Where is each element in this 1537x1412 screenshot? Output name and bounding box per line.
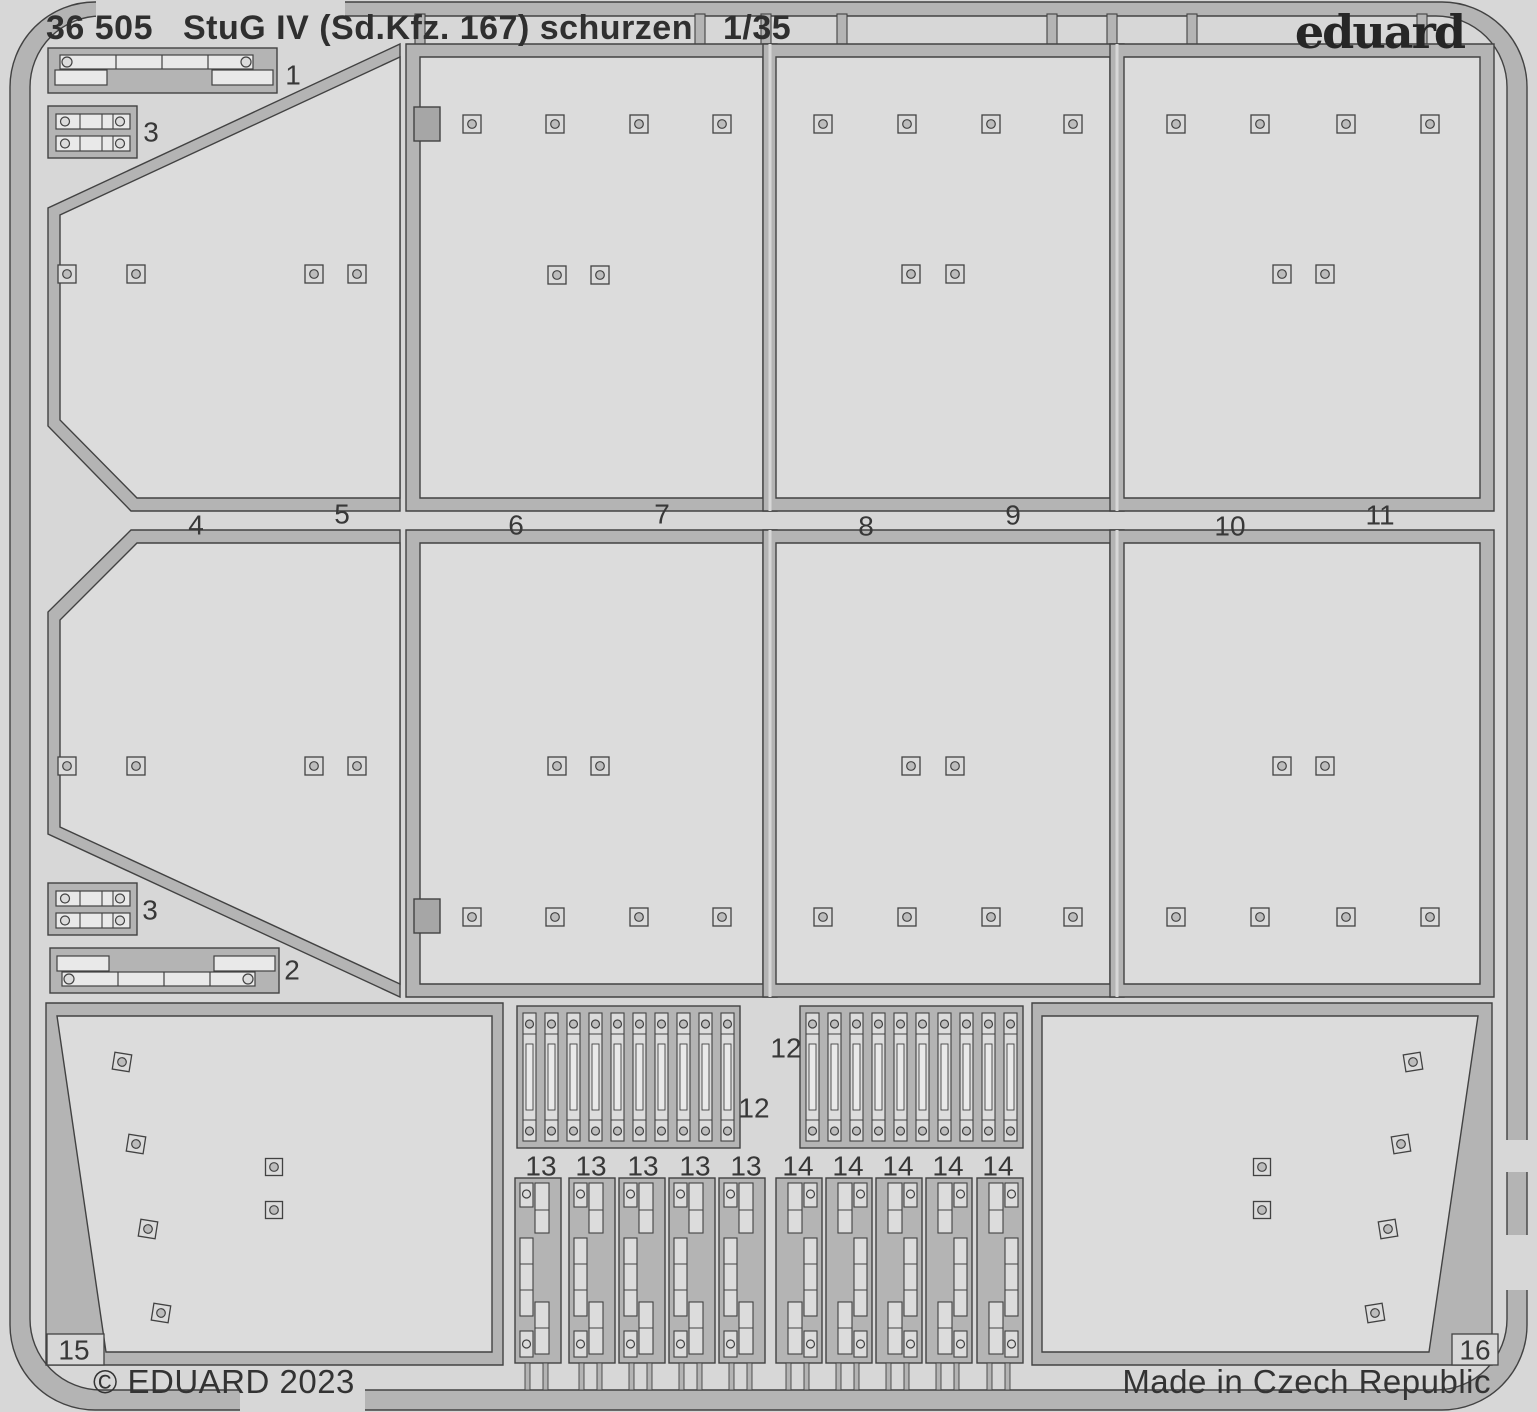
rivet-hole <box>64 974 74 984</box>
bracket-hole <box>727 1190 735 1198</box>
sprue-stem <box>804 1363 809 1390</box>
bolt-hole <box>1321 270 1330 279</box>
bolt-detail <box>713 115 731 133</box>
part-number-label: 11 <box>1365 500 1394 531</box>
bolt-detail <box>946 757 964 775</box>
strip-hole <box>897 1020 905 1028</box>
part-number-label: 9 <box>1005 500 1021 531</box>
sprue-stem <box>786 1363 791 1390</box>
strip-hole <box>570 1020 578 1028</box>
sprue-stem <box>1005 1363 1010 1390</box>
rivet-hole <box>61 139 70 148</box>
bracket-hole <box>627 1340 635 1348</box>
sprue-stem <box>597 1363 602 1390</box>
bolt-detail <box>112 1052 131 1071</box>
part-number-label: 6 <box>508 510 524 541</box>
hanger-strip-slot <box>875 1044 882 1110</box>
bolt-hole <box>907 762 916 771</box>
bolt-hole <box>1278 762 1287 771</box>
photoetch-sheet-scan: 1332456789101112121313131313141414141415… <box>0 0 1537 1412</box>
bolt-detail <box>1337 115 1355 133</box>
bracket-bar <box>804 1238 817 1316</box>
bolt-detail <box>1365 1303 1384 1322</box>
bolt-detail <box>982 115 1000 133</box>
bolt-hole <box>551 913 560 922</box>
strip-hole <box>570 1127 578 1135</box>
bolt-detail <box>1251 115 1269 133</box>
rivet-hole <box>61 117 70 126</box>
hanger-strip-slot <box>658 1044 665 1110</box>
bracket-slot <box>689 1183 703 1233</box>
bolt-hole <box>1069 913 1078 922</box>
sprue-stem <box>579 1363 584 1390</box>
hanger-strip-slot <box>941 1044 948 1110</box>
sprue-stem <box>629 1363 634 1390</box>
bracket-bar <box>674 1238 687 1316</box>
bolt-detail <box>463 115 481 133</box>
bolt-detail <box>1421 115 1439 133</box>
bolt-hole <box>156 1308 166 1318</box>
strip-hole <box>919 1020 927 1028</box>
hanger-strip-slot <box>680 1044 687 1110</box>
bolt-hole <box>903 913 912 922</box>
bolt-hole <box>987 120 996 129</box>
frame-gap <box>1503 1140 1533 1172</box>
hanger-strip-slot <box>724 1044 731 1110</box>
bolt-detail <box>1273 265 1291 283</box>
bolt-hole <box>1383 1224 1393 1234</box>
part-number-label: 13 <box>525 1151 556 1182</box>
bracket-slot <box>535 1183 549 1233</box>
bolt-hole <box>596 762 605 771</box>
strip-hole <box>831 1020 839 1028</box>
bolt-hole <box>1408 1057 1418 1067</box>
sprue-tab <box>1187 14 1197 46</box>
bolt-detail <box>126 1134 145 1153</box>
bolt-hole <box>819 913 828 922</box>
bolt-detail <box>591 757 609 775</box>
panel-notch <box>414 899 440 933</box>
bracket-hole <box>807 1190 815 1198</box>
sprue-stem <box>543 1363 548 1390</box>
hanger-strip-slot <box>614 1044 621 1110</box>
bolt-detail <box>898 115 916 133</box>
bracket-hole <box>523 1340 531 1348</box>
bracket-hole <box>957 1340 965 1348</box>
bolt-hole <box>819 120 828 129</box>
bolt-detail <box>814 908 832 926</box>
bolt-hole <box>635 120 644 129</box>
bolt-hole <box>1396 1139 1406 1149</box>
strip-hole <box>919 1127 927 1135</box>
rail-pad <box>214 956 275 971</box>
strip-hole <box>853 1020 861 1028</box>
strip-hole <box>548 1020 556 1028</box>
strip-hole <box>831 1127 839 1135</box>
part-number-label: 3 <box>143 117 159 148</box>
bolt-detail <box>982 908 1000 926</box>
sprue-stem <box>647 1363 652 1390</box>
strip-hole <box>658 1020 666 1028</box>
bolt-detail <box>814 115 832 133</box>
sprue-tab <box>1107 14 1117 46</box>
bracket-hole <box>577 1190 585 1198</box>
bolt-detail <box>546 115 564 133</box>
bolt-hole <box>1172 913 1181 922</box>
bracket-slot <box>788 1183 802 1233</box>
strip-hole <box>680 1127 688 1135</box>
sprue-stem <box>987 1363 992 1390</box>
bolt-detail <box>1064 908 1082 926</box>
strip-hole <box>636 1020 644 1028</box>
hanger-strip-slot <box>985 1044 992 1110</box>
bolt-detail <box>1421 908 1439 926</box>
bracket-hole <box>727 1340 735 1348</box>
sprue-stem <box>525 1363 530 1390</box>
bolt-hole <box>1256 120 1265 129</box>
sprue-stem <box>954 1363 959 1390</box>
bolt-hole <box>270 1206 279 1215</box>
bolt-detail <box>151 1303 170 1322</box>
bolt-hole <box>1426 913 1435 922</box>
strip-hole <box>724 1127 732 1135</box>
rivet-hole <box>62 57 72 67</box>
hanger-strip-slot <box>963 1044 970 1110</box>
bracket-hole <box>907 1190 915 1198</box>
strip-hole <box>963 1020 971 1028</box>
bracket-bar <box>624 1238 637 1316</box>
hanger-strip-slot <box>919 1044 926 1110</box>
bolt-hole <box>1370 1308 1380 1318</box>
bolt-detail <box>1254 1159 1271 1176</box>
bracket-hole <box>1008 1340 1016 1348</box>
frame-gap <box>1503 1235 1533 1290</box>
bracket-slot <box>888 1183 902 1233</box>
strip-hole <box>809 1020 817 1028</box>
bolt-detail <box>946 265 964 283</box>
bolt-hole <box>1258 1163 1267 1172</box>
sprue-stem <box>679 1363 684 1390</box>
bolt-detail <box>138 1219 157 1238</box>
bolt-hole <box>987 913 996 922</box>
rail-bar <box>62 972 255 986</box>
strip-hole <box>897 1127 905 1135</box>
strip-hole <box>985 1127 993 1135</box>
bolt-hole <box>1069 120 1078 129</box>
rivet-hole <box>116 139 125 148</box>
bolt-hole <box>907 270 916 279</box>
bracket-hole <box>1008 1190 1016 1198</box>
bracket-bar <box>520 1238 533 1316</box>
bolt-detail <box>127 265 145 283</box>
bracket-slot <box>589 1183 603 1233</box>
hanger-strip-slot <box>702 1044 709 1110</box>
hanger-strip-slot <box>853 1044 860 1110</box>
bracket-hole <box>523 1190 531 1198</box>
photoetch-fret-drawing: 1332456789101112121313131313141414141415… <box>0 0 1537 1412</box>
bolt-hole <box>551 120 560 129</box>
sprue-stem <box>697 1363 702 1390</box>
strip-hole <box>658 1127 666 1135</box>
rivet-hole <box>61 894 70 903</box>
bolt-hole <box>63 762 72 771</box>
bracket-hole <box>907 1340 915 1348</box>
strip-hole <box>809 1127 817 1135</box>
bolt-detail <box>266 1202 283 1219</box>
bracket-slot <box>739 1183 753 1233</box>
part-number-label: 1 <box>285 60 301 91</box>
strip-hole <box>614 1020 622 1028</box>
strip-hole <box>592 1020 600 1028</box>
bolt-hole <box>1321 762 1330 771</box>
bolt-detail <box>1254 1202 1271 1219</box>
bolt-hole <box>903 120 912 129</box>
hanger-strip-slot <box>570 1044 577 1110</box>
bolt-hole <box>117 1057 127 1067</box>
bracket-bar <box>724 1238 737 1316</box>
bolt-detail <box>1403 1052 1422 1071</box>
bolt-detail <box>591 266 609 284</box>
bracket-bar <box>574 1238 587 1316</box>
bolt-detail <box>1167 115 1185 133</box>
strip-hole <box>702 1020 710 1028</box>
strip-hole <box>875 1127 883 1135</box>
bolt-detail <box>1337 908 1355 926</box>
rivet-hole <box>243 974 253 984</box>
bolt-hole <box>468 120 477 129</box>
bracket-hole <box>677 1190 685 1198</box>
strip-hole <box>1007 1127 1015 1135</box>
hanger-strip-slot <box>897 1044 904 1110</box>
bolt-hole <box>553 271 562 280</box>
bolt-detail <box>713 908 731 926</box>
rivet-hole <box>116 117 125 126</box>
strip-hole <box>526 1127 534 1135</box>
rivet-hole <box>116 916 125 925</box>
bolt-detail <box>902 757 920 775</box>
sprue-stem <box>904 1363 909 1390</box>
bolt-detail <box>898 908 916 926</box>
strip-hole <box>1007 1020 1015 1028</box>
bolt-detail <box>58 265 76 283</box>
hanger-strip-slot <box>809 1044 816 1110</box>
part-number-label: 14 <box>782 1151 813 1182</box>
sprue-stem <box>936 1363 941 1390</box>
part-number-label: 10 <box>1214 511 1245 542</box>
bolt-hole <box>635 913 644 922</box>
bolt-detail <box>348 757 366 775</box>
bracket-bar <box>1005 1238 1018 1316</box>
bracket-hole <box>857 1340 865 1348</box>
part-number-label: 4 <box>188 510 204 541</box>
bolt-hole <box>63 270 72 279</box>
part-number-label: 13 <box>575 1151 606 1182</box>
rivet-hole <box>61 916 70 925</box>
bolt-hole <box>468 913 477 922</box>
bracket-hole <box>957 1190 965 1198</box>
sprue-tab <box>837 14 847 46</box>
part-number-label: 13 <box>627 1151 658 1182</box>
bracket-hole <box>677 1340 685 1348</box>
bolt-hole <box>1278 270 1287 279</box>
strip-hole <box>963 1127 971 1135</box>
bolt-detail <box>348 265 366 283</box>
strip-hole <box>724 1020 732 1028</box>
part-number-label: 14 <box>982 1151 1013 1182</box>
bracket-slot <box>938 1183 952 1233</box>
bolt-detail <box>1273 757 1291 775</box>
bolt-detail <box>266 1159 283 1176</box>
rail-pad <box>57 956 109 971</box>
hanger-strip-slot <box>526 1044 533 1110</box>
bolt-detail <box>548 757 566 775</box>
strip-hole <box>526 1020 534 1028</box>
bracket-bar <box>854 1238 867 1316</box>
bolt-detail <box>127 757 145 775</box>
bolt-detail <box>463 908 481 926</box>
sprue-stem <box>886 1363 891 1390</box>
bolt-detail <box>902 265 920 283</box>
bolt-detail <box>548 266 566 284</box>
bolt-hole <box>1258 1206 1267 1215</box>
bracket-slot <box>989 1183 1003 1233</box>
strip-hole <box>680 1020 688 1028</box>
bolt-hole <box>1426 120 1435 129</box>
rivet-hole <box>116 894 125 903</box>
bracket-bar <box>904 1238 917 1316</box>
bolt-detail <box>305 757 323 775</box>
rail-pad <box>212 70 273 85</box>
panel-notch <box>414 107 440 141</box>
part-number-label: 12 <box>738 1093 769 1124</box>
part-number-label: 14 <box>932 1151 963 1182</box>
sheet-header: 36 505 StuG IV (Sd.Kfz. 167) schurzen 1/… <box>46 9 791 48</box>
bolt-detail <box>58 757 76 775</box>
bolt-hole <box>951 762 960 771</box>
eduard-logo: eduard <box>1288 9 1464 55</box>
copyright-label: © EDUARD 2023 <box>93 1363 355 1401</box>
page-title: StuG IV (Sd.Kfz. 167) schurzen <box>183 9 693 48</box>
hanger-strip-slot <box>1007 1044 1014 1110</box>
sprue-stem <box>729 1363 734 1390</box>
part-number-label: 5 <box>334 499 350 530</box>
sprue-stem <box>747 1363 752 1390</box>
bolt-hole <box>310 270 319 279</box>
strip-hole <box>636 1127 644 1135</box>
bolt-hole <box>353 270 362 279</box>
hanger-strip-slot <box>831 1044 838 1110</box>
bolt-detail <box>1378 1219 1397 1238</box>
bolt-detail <box>630 908 648 926</box>
catalog-number: 36 505 <box>46 9 153 48</box>
bracket-hole <box>807 1340 815 1348</box>
bolt-detail <box>630 115 648 133</box>
strip-hole <box>875 1020 883 1028</box>
part-number-label: 15 <box>58 1335 89 1366</box>
bolt-hole <box>553 762 562 771</box>
bolt-detail <box>1316 265 1334 283</box>
bolt-detail <box>305 265 323 283</box>
part-number-label: 16 <box>1459 1335 1490 1366</box>
rivet-hole <box>241 57 251 67</box>
part-number-label: 7 <box>654 499 670 530</box>
part-number-label: 13 <box>730 1151 761 1182</box>
bolt-detail <box>546 908 564 926</box>
strip-hole <box>941 1127 949 1135</box>
part-number-label: 14 <box>832 1151 863 1182</box>
bolt-hole <box>353 762 362 771</box>
bolt-hole <box>143 1224 153 1234</box>
part-number-label: 3 <box>142 895 158 926</box>
bolt-hole <box>718 913 727 922</box>
strip-hole <box>853 1127 861 1135</box>
bracket-slot <box>838 1183 852 1233</box>
part-number-label: 8 <box>858 511 874 542</box>
bolt-hole <box>132 762 141 771</box>
bolt-detail <box>1251 908 1269 926</box>
made-in-label: Made in Czech Republic <box>1122 1363 1491 1401</box>
hanger-strip-slot <box>636 1044 643 1110</box>
hanger-strip-slot <box>592 1044 599 1110</box>
strip-hole <box>548 1127 556 1135</box>
strip-hole <box>985 1020 993 1028</box>
bracket-hole <box>627 1190 635 1198</box>
bolt-detail <box>1167 908 1185 926</box>
sprue-stem <box>836 1363 841 1390</box>
strip-hole <box>941 1020 949 1028</box>
bracket-slot <box>639 1183 653 1233</box>
bolt-detail <box>1064 115 1082 133</box>
bolt-hole <box>132 270 141 279</box>
part-number-label: 12 <box>770 1033 801 1064</box>
part-number-label: 14 <box>882 1151 913 1182</box>
bolt-hole <box>1172 120 1181 129</box>
bolt-hole <box>1342 913 1351 922</box>
sprue-tab <box>1047 14 1057 46</box>
bolt-hole <box>718 120 727 129</box>
sprue-stem <box>854 1363 859 1390</box>
bracket-hole <box>857 1190 865 1198</box>
rail-pad <box>55 70 107 85</box>
bolt-hole <box>951 270 960 279</box>
bolt-hole <box>1256 913 1265 922</box>
bolt-hole <box>310 762 319 771</box>
bracket-hole <box>577 1340 585 1348</box>
bracket-bar <box>954 1238 967 1316</box>
bolt-detail <box>1391 1134 1410 1153</box>
bolt-hole <box>270 1163 279 1172</box>
rail-bar <box>60 55 253 69</box>
strip-hole <box>702 1127 710 1135</box>
scale-label: 1/35 <box>723 9 791 48</box>
part-number-label: 13 <box>679 1151 710 1182</box>
bolt-hole <box>131 1139 141 1149</box>
strip-hole <box>592 1127 600 1135</box>
bolt-detail <box>1316 757 1334 775</box>
part-number-label: 2 <box>284 955 300 986</box>
bolt-hole <box>1342 120 1351 129</box>
strip-hole <box>614 1127 622 1135</box>
hanger-strip-slot <box>548 1044 555 1110</box>
bolt-hole <box>596 271 605 280</box>
